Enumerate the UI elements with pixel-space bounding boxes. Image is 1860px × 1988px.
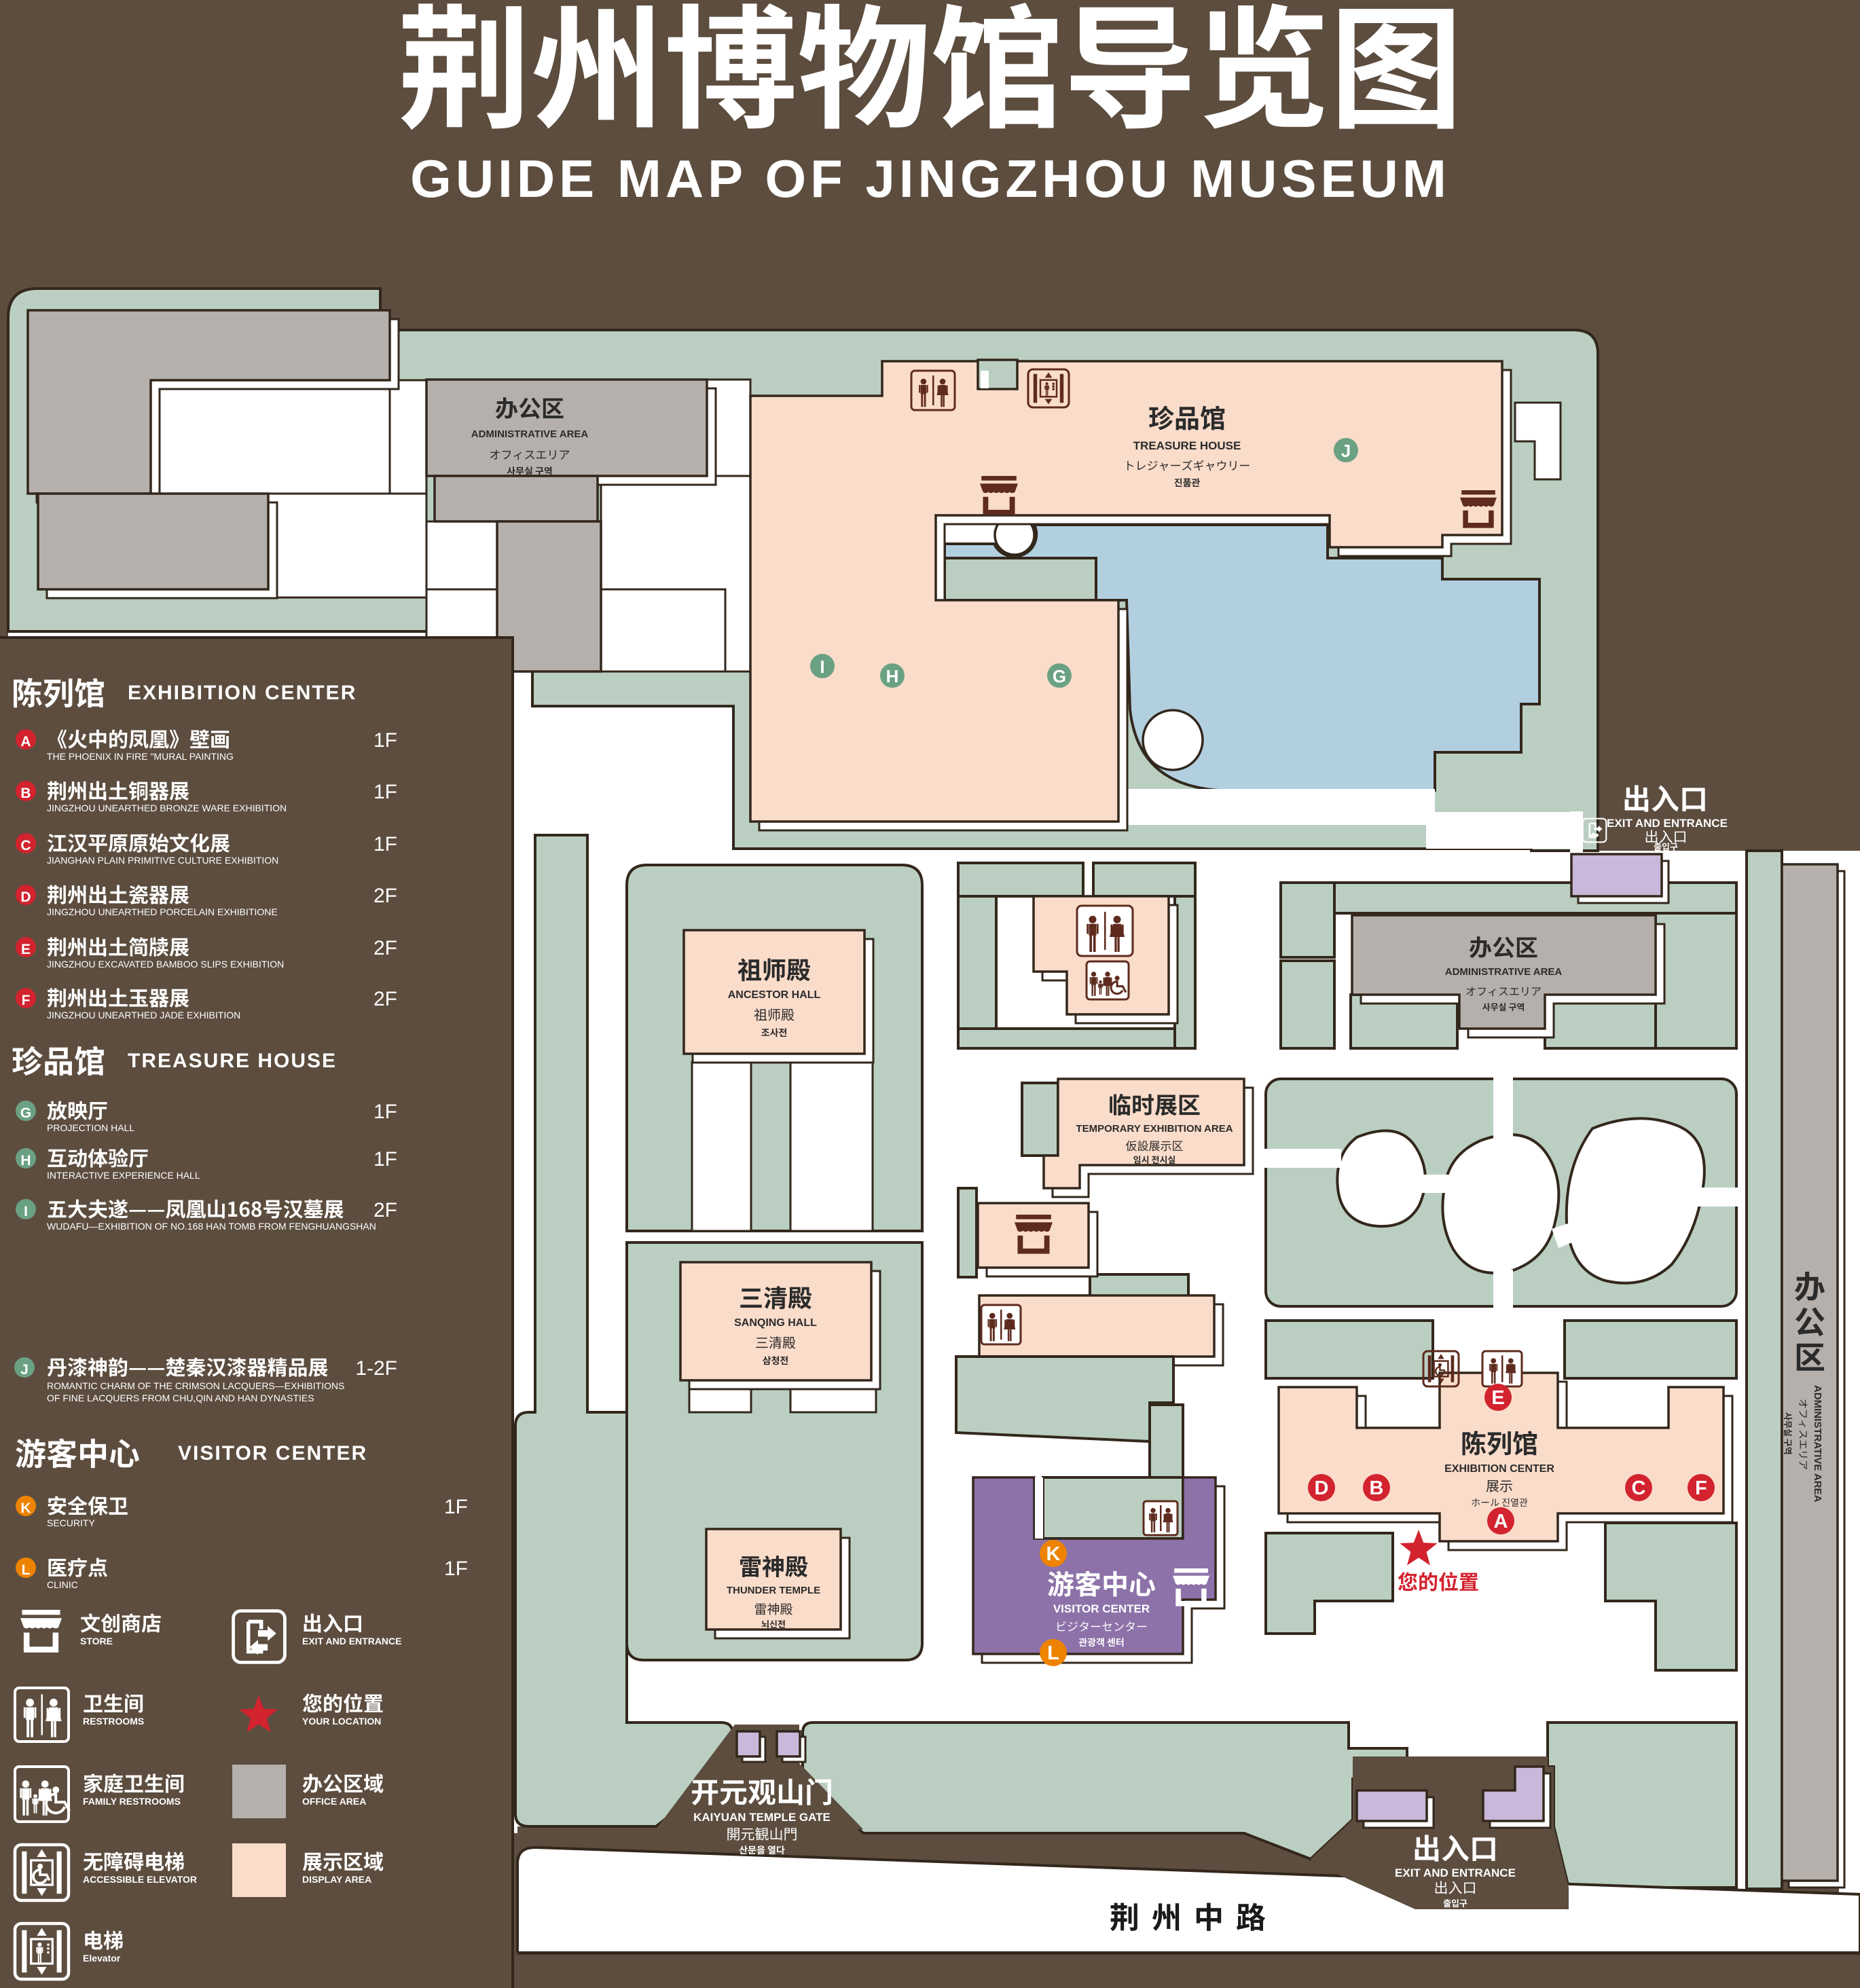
svg-text:GUIDE MAP OF JINGZHOU MUSEUM: GUIDE MAP OF JINGZHOU MUSEUM: [410, 149, 1451, 208]
svg-text:ADMINISTRATIVE AREA: ADMINISTRATIVE AREA: [1812, 1385, 1823, 1503]
svg-text:1F: 1F: [444, 1496, 468, 1518]
svg-text:E: E: [1491, 1387, 1504, 1409]
svg-text:THUNDER TEMPLE: THUNDER TEMPLE: [727, 1585, 820, 1596]
svg-text:J: J: [1341, 441, 1351, 461]
svg-text:ROMANTIC CHARM OF THE CRIMSON: ROMANTIC CHARM OF THE CRIMSON LACQUERS—E…: [47, 1380, 344, 1391]
svg-text:FAMILY RESTROOMS: FAMILY RESTROOMS: [83, 1796, 181, 1807]
svg-text:2F: 2F: [373, 988, 397, 1010]
svg-text:EXIT AND ENTRANCE: EXIT AND ENTRANCE: [302, 1636, 402, 1646]
svg-text:EXIT AND ENTRANCE: EXIT AND ENTRANCE: [1607, 817, 1728, 830]
svg-text:TEMPORARY EXHIBITION AREA: TEMPORARY EXHIBITION AREA: [1076, 1123, 1233, 1135]
svg-text:H: H: [20, 1153, 31, 1168]
svg-text:VISITOR CENTER: VISITOR CENTER: [1053, 1602, 1150, 1615]
svg-text:EXHIBITION CENTER: EXHIBITION CENTER: [128, 682, 357, 704]
svg-text:2F: 2F: [373, 937, 397, 959]
svg-text:E: E: [21, 942, 31, 957]
svg-text:JIANGHAN PLAIN PRIMITIVE CULTU: JIANGHAN PLAIN PRIMITIVE CULTURE EXHIBIT…: [47, 855, 278, 866]
svg-text:VISITOR CENTER: VISITOR CENTER: [178, 1442, 367, 1465]
svg-text:INTERACTIVE EXPERIENCE HALL: INTERACTIVE EXPERIENCE HALL: [47, 1170, 200, 1181]
svg-text:YOUR LOCATION: YOUR LOCATION: [302, 1716, 381, 1727]
svg-text:A: A: [20, 734, 31, 750]
svg-text:THE PHOENIX IN FIRE "MURAL PAI: THE PHOENIX IN FIRE "MURAL PAINTING: [47, 751, 234, 762]
svg-text:RESTROOMS: RESTROOMS: [83, 1716, 144, 1727]
svg-text:ADMINISTRATIVE AREA: ADMINISTRATIVE AREA: [1445, 966, 1563, 978]
svg-text:PROJECTION HALL: PROJECTION HALL: [47, 1122, 134, 1133]
svg-text:K: K: [1046, 1543, 1061, 1565]
svg-text:D: D: [20, 889, 31, 905]
svg-text:1F: 1F: [373, 1148, 397, 1171]
svg-text:ADMINISTRATIVE AREA: ADMINISTRATIVE AREA: [471, 428, 589, 440]
svg-text:I: I: [820, 657, 824, 677]
svg-text:WUDAFU—EXHIBITION OF NO.168 HA: WUDAFU—EXHIBITION OF NO.168 HAN TOMB FRO…: [47, 1221, 376, 1232]
svg-text:B: B: [1370, 1477, 1384, 1499]
svg-text:JINGZHOU UNEARTHED PORCELAIN E: JINGZHOU UNEARTHED PORCELAIN EXHIBITIONE: [47, 906, 278, 917]
svg-text:DISPLAY AREA: DISPLAY AREA: [302, 1874, 371, 1885]
svg-text:G: G: [20, 1105, 31, 1121]
svg-text:1F: 1F: [373, 1101, 397, 1123]
svg-text:OF FINE LACQUERS FROM CHU,QIN: OF FINE LACQUERS FROM CHU,QIN AND HAN DY…: [47, 1393, 314, 1403]
svg-text:ACCESSIBLE ELEVATOR: ACCESSIBLE ELEVATOR: [83, 1874, 197, 1885]
svg-text:L: L: [1047, 1642, 1059, 1664]
svg-text:ANCESTOR HALL: ANCESTOR HALL: [728, 989, 821, 1001]
svg-text:C: C: [1632, 1477, 1646, 1499]
svg-text:1F: 1F: [373, 833, 397, 855]
svg-text:JINGZHOU EXCAVATED BAMBOO SLIP: JINGZHOU EXCAVATED BAMBOO SLIPS EXHIBITI…: [47, 959, 284, 970]
svg-text:JINGZHOU UNEARTHED JADE EXHIBI: JINGZHOU UNEARTHED JADE EXHIBITION: [47, 1010, 240, 1020]
svg-text:STORE: STORE: [80, 1636, 113, 1646]
svg-text:KAIYUAN TEMPLE GATE: KAIYUAN TEMPLE GATE: [693, 1811, 831, 1824]
svg-text:2F: 2F: [373, 885, 397, 907]
svg-text:F: F: [1695, 1477, 1707, 1499]
svg-text:K: K: [20, 1501, 31, 1516]
svg-text:1F: 1F: [373, 729, 397, 752]
svg-text:SANQING HALL: SANQING HALL: [734, 1317, 817, 1329]
svg-text:EXHIBITION CENTER: EXHIBITION CENTER: [1444, 1463, 1554, 1475]
svg-text:1F: 1F: [373, 781, 397, 803]
svg-text:JINGZHOU UNEARTHED BRONZE WARE: JINGZHOU UNEARTHED BRONZE WARE EXHIBITIO…: [47, 803, 287, 813]
svg-text:OFFICE AREA: OFFICE AREA: [302, 1796, 366, 1807]
svg-text:TREASURE HOUSE: TREASURE HOUSE: [128, 1050, 337, 1072]
svg-text:TREASURE HOUSE: TREASURE HOUSE: [1133, 439, 1241, 452]
svg-text:F: F: [22, 993, 31, 1008]
svg-text:A: A: [1494, 1511, 1508, 1532]
svg-text:G: G: [1053, 666, 1066, 686]
svg-text:EXIT AND ENTRANCE: EXIT AND ENTRANCE: [1395, 1866, 1516, 1879]
svg-text:I: I: [24, 1204, 28, 1219]
svg-text:H: H: [886, 666, 899, 686]
svg-text:SECURITY: SECURITY: [47, 1517, 95, 1528]
svg-text:C: C: [20, 838, 31, 853]
svg-text:CLINIC: CLINIC: [47, 1579, 78, 1590]
svg-text:D: D: [1315, 1477, 1329, 1499]
svg-text:J: J: [20, 1362, 29, 1378]
svg-text:2F: 2F: [373, 1199, 397, 1221]
svg-text:B: B: [20, 786, 31, 801]
svg-text:Elevator: Elevator: [83, 1953, 121, 1964]
svg-text:1-2F: 1-2F: [355, 1357, 397, 1380]
svg-text:L: L: [22, 1562, 31, 1578]
svg-text:1F: 1F: [444, 1558, 468, 1580]
